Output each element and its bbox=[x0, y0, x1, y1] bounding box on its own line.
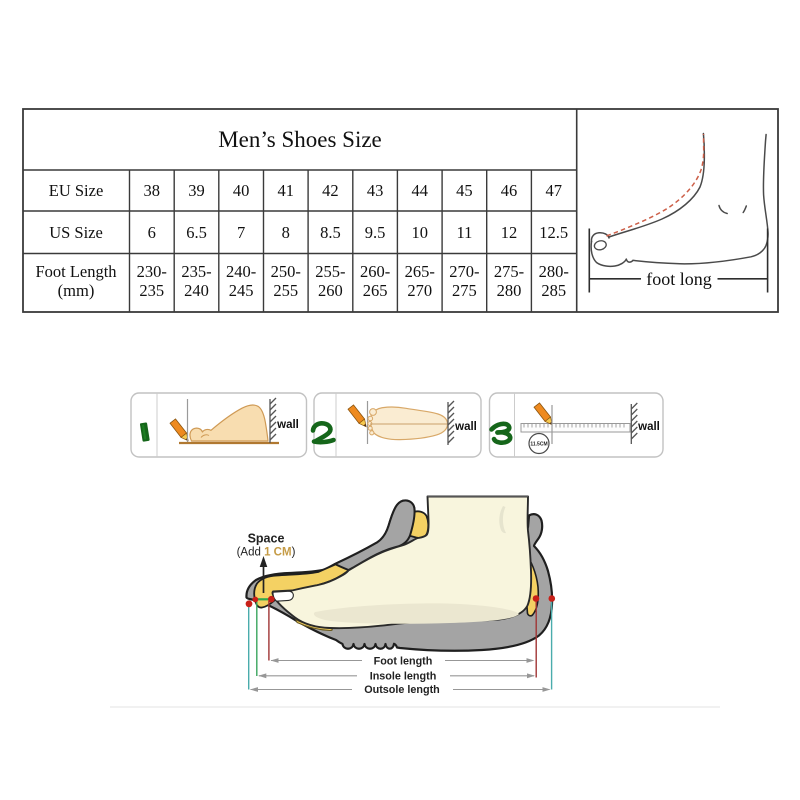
svg-text:Space: Space bbox=[248, 532, 285, 546]
svg-text:US Size: US Size bbox=[49, 223, 103, 242]
svg-text:275-: 275- bbox=[494, 262, 524, 281]
svg-text:Men’s Shoes Size: Men’s Shoes Size bbox=[218, 127, 382, 152]
svg-text:255-: 255- bbox=[315, 262, 345, 281]
svg-text:12: 12 bbox=[501, 223, 518, 242]
svg-text:280-: 280- bbox=[539, 262, 569, 281]
svg-text:265: 265 bbox=[363, 281, 388, 300]
svg-text:39: 39 bbox=[188, 181, 205, 200]
svg-text:265-: 265- bbox=[405, 262, 435, 281]
svg-text:8: 8 bbox=[282, 223, 290, 242]
svg-text:6.5: 6.5 bbox=[186, 223, 207, 242]
svg-text:240: 240 bbox=[184, 281, 209, 300]
svg-text:38: 38 bbox=[144, 181, 161, 200]
svg-text:Foot Length: Foot Length bbox=[35, 262, 117, 281]
svg-text:255: 255 bbox=[273, 281, 298, 300]
svg-text:250-: 250- bbox=[271, 262, 301, 281]
svg-text:EU Size: EU Size bbox=[49, 181, 104, 200]
svg-text:235-: 235- bbox=[181, 262, 211, 281]
svg-text:275: 275 bbox=[452, 281, 477, 300]
svg-text:280: 280 bbox=[497, 281, 522, 300]
svg-text:285: 285 bbox=[541, 281, 566, 300]
svg-text:9.5: 9.5 bbox=[365, 223, 386, 242]
svg-text:Foot length: Foot length bbox=[374, 655, 433, 667]
svg-text:10: 10 bbox=[411, 223, 428, 242]
svg-text:6: 6 bbox=[148, 223, 156, 242]
svg-text:foot long: foot long bbox=[646, 269, 712, 289]
svg-text:42: 42 bbox=[322, 181, 339, 200]
svg-text:260-: 260- bbox=[360, 262, 390, 281]
svg-text:wall: wall bbox=[454, 421, 477, 433]
svg-text:11: 11 bbox=[456, 223, 472, 242]
svg-text:40: 40 bbox=[233, 181, 250, 200]
svg-text:245: 245 bbox=[229, 281, 254, 300]
svg-text:46: 46 bbox=[501, 181, 518, 200]
svg-text:7: 7 bbox=[237, 223, 245, 242]
svg-text:43: 43 bbox=[367, 181, 384, 200]
svg-text:8.5: 8.5 bbox=[320, 223, 341, 242]
svg-text:(Add 1 CM): (Add 1 CM) bbox=[237, 547, 296, 559]
svg-text:12.5: 12.5 bbox=[539, 223, 568, 242]
svg-text:260: 260 bbox=[318, 281, 343, 300]
svg-text:270-: 270- bbox=[449, 262, 479, 281]
svg-text:wall: wall bbox=[276, 419, 299, 431]
svg-text:(mm): (mm) bbox=[58, 281, 95, 300]
svg-text:45: 45 bbox=[456, 181, 473, 200]
svg-text:Insole length: Insole length bbox=[370, 670, 437, 682]
svg-text:230-: 230- bbox=[137, 262, 167, 281]
svg-text:270: 270 bbox=[407, 281, 432, 300]
svg-text:240-: 240- bbox=[226, 262, 256, 281]
svg-text:47: 47 bbox=[545, 181, 562, 200]
svg-text:44: 44 bbox=[411, 181, 428, 200]
svg-text:Outsole length: Outsole length bbox=[364, 684, 440, 696]
svg-text:41: 41 bbox=[278, 181, 295, 200]
svg-text:11.5CM: 11.5CM bbox=[530, 442, 547, 448]
svg-text:wall: wall bbox=[637, 421, 660, 433]
svg-text:235: 235 bbox=[139, 281, 164, 300]
